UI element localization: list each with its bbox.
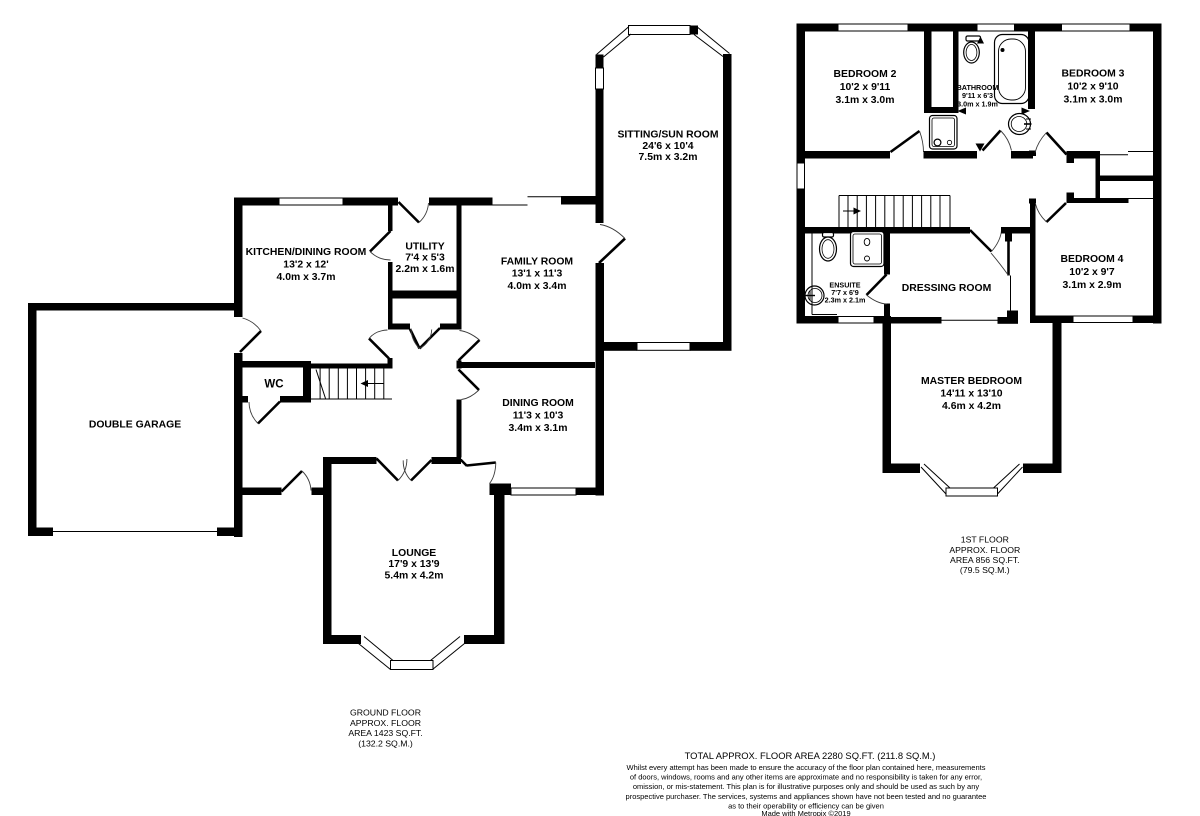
svg-text:Made with Metropix ©2019: Made with Metropix ©2019 — [761, 809, 850, 816]
svg-text:Whilst every attempt has been: Whilst every attempt has been made to en… — [627, 763, 986, 772]
svg-text:KITCHEN/DINING ROOM: KITCHEN/DINING ROOM — [246, 247, 367, 258]
svg-text:5.4m x 4.2m: 5.4m x 4.2m — [385, 571, 444, 582]
svg-text:10'2 x 9'7: 10'2 x 9'7 — [1069, 267, 1115, 278]
svg-text:7.5m x 3.2m: 7.5m x 3.2m — [639, 152, 698, 163]
svg-text:DINING ROOM: DINING ROOM — [502, 398, 574, 409]
svg-text:10'2 x 9'11: 10'2 x 9'11 — [840, 82, 891, 93]
svg-text:APPROX. FLOOR: APPROX. FLOOR — [350, 718, 421, 728]
svg-text:WC: WC — [264, 379, 283, 391]
svg-text:4.0m x 3.4m: 4.0m x 3.4m — [508, 281, 567, 292]
svg-text:3.0m x 1.9m: 3.0m x 1.9m — [957, 99, 998, 108]
svg-text:APPROX. FLOOR: APPROX. FLOOR — [949, 545, 1020, 555]
svg-text:13'1 x 11'3: 13'1 x 11'3 — [512, 269, 563, 280]
svg-text:3.1m x 2.9m: 3.1m x 2.9m — [1063, 280, 1122, 291]
svg-text:2.2m x 1.6m: 2.2m x 1.6m — [396, 264, 455, 275]
svg-text:4.0m x 3.7m: 4.0m x 3.7m — [277, 272, 336, 283]
svg-text:3.1m x 3.0m: 3.1m x 3.0m — [836, 95, 895, 106]
svg-text:SITTING/SUN ROOM: SITTING/SUN ROOM — [617, 130, 718, 141]
svg-text:TOTAL APPROX. FLOOR AREA 2280: TOTAL APPROX. FLOOR AREA 2280 SQ.FT. (21… — [685, 750, 936, 761]
svg-text:3.4m x 3.1m: 3.4m x 3.1m — [509, 423, 568, 434]
svg-text:BEDROOM 2: BEDROOM 2 — [834, 69, 897, 80]
svg-text:(79.5 SQ.M.): (79.5 SQ.M.) — [960, 565, 1010, 575]
svg-text:prospective purchaser. The ser: prospective purchaser. The services, sys… — [626, 792, 987, 801]
svg-text:AREA 1423 SQ.FT.: AREA 1423 SQ.FT. — [348, 728, 422, 738]
svg-text:4.6m x 4.2m: 4.6m x 4.2m — [942, 401, 1001, 412]
svg-text:10'2 x 9'10: 10'2 x 9'10 — [1067, 82, 1118, 93]
svg-text:FAMILY ROOM: FAMILY ROOM — [501, 256, 573, 267]
svg-text:omission, or mis-statement. Th: omission, or mis-statement. This plan is… — [633, 782, 980, 791]
svg-text:BEDROOM 4: BEDROOM 4 — [1061, 254, 1124, 265]
svg-text:UTILITY: UTILITY — [405, 241, 444, 252]
svg-text:3.1m x 3.0m: 3.1m x 3.0m — [1064, 95, 1123, 106]
svg-text:BEDROOM 3: BEDROOM 3 — [1062, 69, 1125, 80]
svg-text:AREA 856 SQ.FT.: AREA 856 SQ.FT. — [950, 555, 1020, 565]
svg-text:2.3m x 2.1m: 2.3m x 2.1m — [825, 296, 866, 305]
svg-text:11'3 x 10'3: 11'3 x 10'3 — [513, 410, 564, 421]
svg-text:14'11 x 13'10: 14'11 x 13'10 — [940, 388, 1002, 399]
svg-text:24'6 x 10'4: 24'6 x 10'4 — [642, 141, 693, 152]
svg-text:LOUNGE: LOUNGE — [392, 548, 437, 559]
svg-text:of doors, windows, rooms and a: of doors, windows, rooms and any other i… — [630, 773, 982, 782]
svg-text:7'4 x 5'3: 7'4 x 5'3 — [405, 253, 445, 264]
svg-text:13'2 x 12': 13'2 x 12' — [283, 260, 328, 271]
svg-text:DOUBLE GARAGE: DOUBLE GARAGE — [89, 419, 181, 430]
svg-text:DRESSING ROOM: DRESSING ROOM — [902, 283, 991, 294]
svg-text:MASTER BEDROOM: MASTER BEDROOM — [921, 376, 1022, 387]
svg-text:(132.2 SQ.M.): (132.2 SQ.M.) — [358, 738, 413, 748]
svg-text:GROUND FLOOR: GROUND FLOOR — [350, 708, 421, 718]
svg-text:17'9 x 13'9: 17'9 x 13'9 — [388, 559, 439, 570]
svg-text:1ST FLOOR: 1ST FLOOR — [961, 535, 1009, 545]
